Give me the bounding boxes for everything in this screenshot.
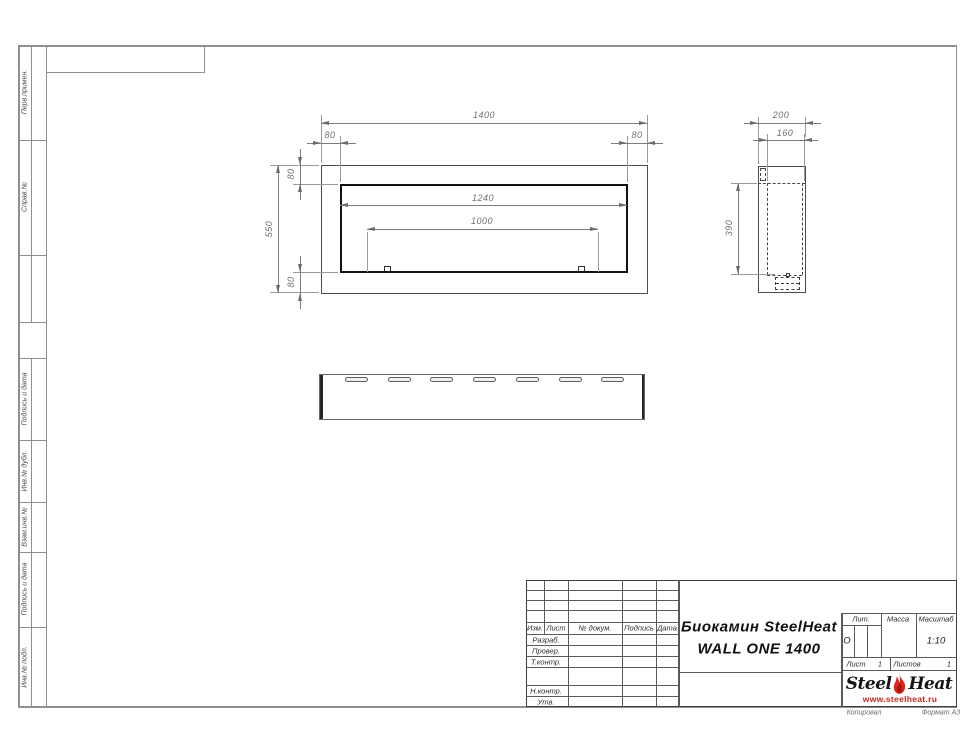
dimension-line (738, 183, 739, 274)
title-block-line (890, 657, 891, 670)
burner-port (578, 266, 585, 271)
dim-side-opening-height: 390 (724, 220, 734, 237)
vent-slot (516, 377, 539, 382)
dim-front-right-inset: 80 (631, 130, 642, 140)
dim-side-inner-depth: 160 (777, 128, 794, 138)
dim-side-depth: 200 (773, 110, 790, 120)
title-block-line (854, 625, 855, 657)
title-block-line (916, 613, 917, 657)
margin-box-line (18, 552, 46, 553)
bottom-view-edge (320, 375, 323, 419)
bottom-view (319, 374, 645, 420)
arrowhead (298, 293, 302, 301)
footer-format-label: Формат А3 (922, 710, 960, 717)
flame-icon (892, 674, 907, 694)
margin-label-vzam-inv: Взам.инв.№ (22, 507, 29, 546)
margin-divider (31, 358, 32, 707)
side-hidden-line (802, 183, 803, 275)
title-block-line (841, 625, 881, 626)
dimension-line (367, 229, 598, 230)
margin-box-line (18, 140, 46, 141)
margin-label-perv-primen: Перв.примен. (22, 70, 29, 115)
extension-line (367, 232, 368, 272)
side-burner-notch (786, 273, 790, 277)
arrowhead (313, 141, 321, 145)
listov-value: 1 (947, 659, 951, 668)
arrowhead (639, 121, 647, 125)
margin-box-line (18, 358, 46, 359)
dim-front-burner: 1000 (471, 216, 493, 226)
massa-label: Масса (887, 615, 909, 624)
margin-label-podpis-data-1: Подпись и дата (22, 373, 29, 426)
dimension-line (321, 123, 647, 124)
masshtab-label: Масштаб (918, 615, 953, 624)
doc-title-line1: Биокамин SteelHeat (681, 619, 837, 636)
dim-front-bottom-inset: 80 (286, 276, 296, 287)
header-list: Лист (546, 624, 565, 633)
header-podpis: Подпись (624, 624, 654, 633)
header-data: Дата (657, 624, 677, 633)
title-block-line (867, 625, 868, 657)
header-ndokum: № докум. (578, 624, 611, 633)
lit-value: О (843, 636, 850, 647)
arrowhead (759, 138, 767, 142)
arrowhead (340, 203, 348, 207)
doc-title-line2: WALL ONE 1400 (698, 641, 821, 658)
logo: Steel Heat (843, 672, 955, 696)
arrowhead (276, 165, 280, 173)
side-hidden-line (767, 183, 768, 275)
margin-divider (31, 45, 32, 322)
row-nkontr: Н.контр. (530, 687, 562, 696)
row-prover: Провер. (532, 647, 560, 656)
dim-front-left-inset: 80 (324, 130, 335, 140)
side-hidden-line (758, 183, 805, 184)
logo-heat-text: Heat (908, 674, 952, 694)
arrowhead (619, 141, 627, 145)
title-block-line (526, 600, 679, 601)
extension-line (647, 115, 648, 163)
vent-slot (473, 377, 496, 382)
burner-port (384, 266, 391, 271)
logo-steel-text: Steel (846, 674, 892, 694)
vent-slot (559, 377, 582, 382)
row-utv: Утв. (537, 697, 554, 706)
margin-box-line (18, 255, 46, 256)
dimension-line (340, 205, 627, 206)
list-label: Лист (846, 659, 865, 668)
arrowhead (619, 203, 627, 207)
row-tkontr: Т.контр. (531, 658, 561, 667)
arrowhead (298, 264, 302, 272)
dim-front-opening: 1240 (472, 193, 494, 203)
frame-line-inner (46, 45, 47, 707)
arrowhead (647, 141, 655, 145)
title-block-line (679, 672, 841, 673)
dimension-line (278, 165, 279, 293)
margin-label-podpis-data-2: Подпись и дата (22, 563, 29, 616)
arrowhead (805, 121, 813, 125)
extension-line (598, 232, 599, 272)
margin-box-line (18, 502, 46, 503)
row-razrab: Разраб. (532, 636, 559, 645)
arrowhead (367, 227, 375, 231)
side-hidden-line (767, 275, 802, 276)
margin-label-sprav-no: Справ.№ (22, 182, 29, 212)
title-block-line (841, 670, 957, 671)
footer-copied-label: Копировал (847, 710, 882, 717)
extension-line (767, 134, 768, 181)
arrowhead (804, 138, 812, 142)
arrowhead (298, 157, 302, 165)
extension-line (731, 274, 775, 275)
title-block-line (526, 590, 679, 591)
vent-slot (430, 377, 453, 382)
dim-front-width: 1400 (473, 110, 495, 120)
title-block-line (881, 613, 882, 657)
side-bracket-hidden (760, 168, 766, 181)
masshtab-value: 1:10 (927, 636, 946, 647)
title-block-line (526, 610, 679, 611)
listov-label: Листов (893, 659, 920, 668)
arrowhead (736, 266, 740, 274)
title-block-line (544, 580, 545, 634)
dim-front-top-inset: 80 (286, 168, 296, 179)
title-block-line (841, 657, 957, 658)
arrowhead (340, 141, 348, 145)
lit-label: Лит. (852, 615, 870, 624)
arrowhead (750, 121, 758, 125)
arrowhead (321, 121, 329, 125)
list-value: 1 (878, 659, 882, 668)
designation-band (46, 45, 205, 73)
arrowhead (276, 285, 280, 293)
bottom-view-edge (642, 375, 645, 419)
arrowhead (590, 227, 598, 231)
margin-box-line (18, 322, 46, 323)
dim-front-height: 550 (264, 221, 274, 238)
margin-box-line (18, 627, 46, 628)
arrowhead (298, 184, 302, 192)
margin-label-inv-dubl: Инв.№ дубл. (22, 450, 29, 491)
header-izm: Изм. (527, 624, 543, 633)
side-burner-line (776, 283, 799, 284)
logo-website: www.steelheat.ru (863, 694, 937, 704)
vent-slot (601, 377, 624, 382)
frame-line-left (18, 45, 20, 707)
arrowhead (736, 183, 740, 191)
vent-slot (388, 377, 411, 382)
margin-box-line (18, 440, 46, 441)
drawing-sheet: Перв.примен. Справ.№ Подпись и дата Инв.… (0, 0, 970, 749)
margin-label-inv-podl: Инв.№ подл. (22, 646, 29, 688)
title-block-line (526, 667, 679, 668)
vent-slot (345, 377, 368, 382)
